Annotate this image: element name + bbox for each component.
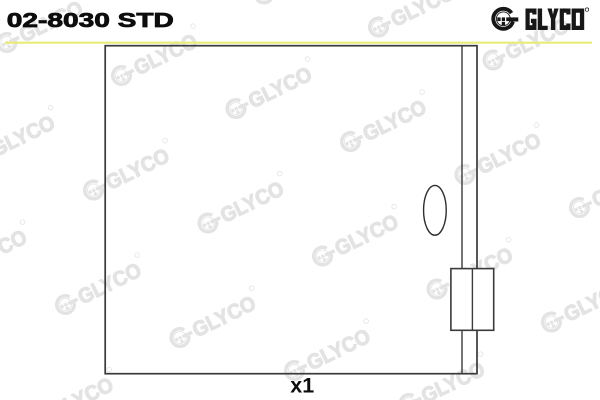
svg-text:02-8030 STD: 02-8030 STD (7, 9, 174, 32)
svg-text:x1: x1 (290, 374, 314, 398)
